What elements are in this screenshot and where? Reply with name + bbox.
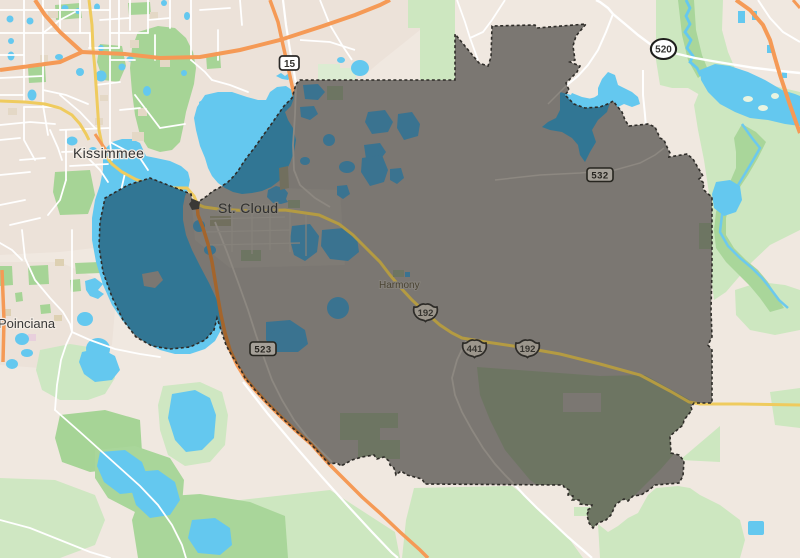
svg-text:532: 532 bbox=[591, 171, 608, 182]
svg-text:15: 15 bbox=[284, 59, 296, 70]
svg-text:523: 523 bbox=[254, 345, 271, 356]
svg-text:192: 192 bbox=[418, 308, 434, 319]
svg-text:520: 520 bbox=[655, 45, 672, 56]
svg-text:Harmony: Harmony bbox=[379, 280, 420, 291]
svg-text:Poinciana: Poinciana bbox=[0, 316, 56, 331]
svg-text:Kissimmee: Kissimmee bbox=[73, 145, 144, 161]
svg-text:441: 441 bbox=[467, 344, 484, 355]
svg-text:192: 192 bbox=[520, 344, 536, 355]
svg-text:St. Cloud: St. Cloud bbox=[218, 200, 278, 216]
